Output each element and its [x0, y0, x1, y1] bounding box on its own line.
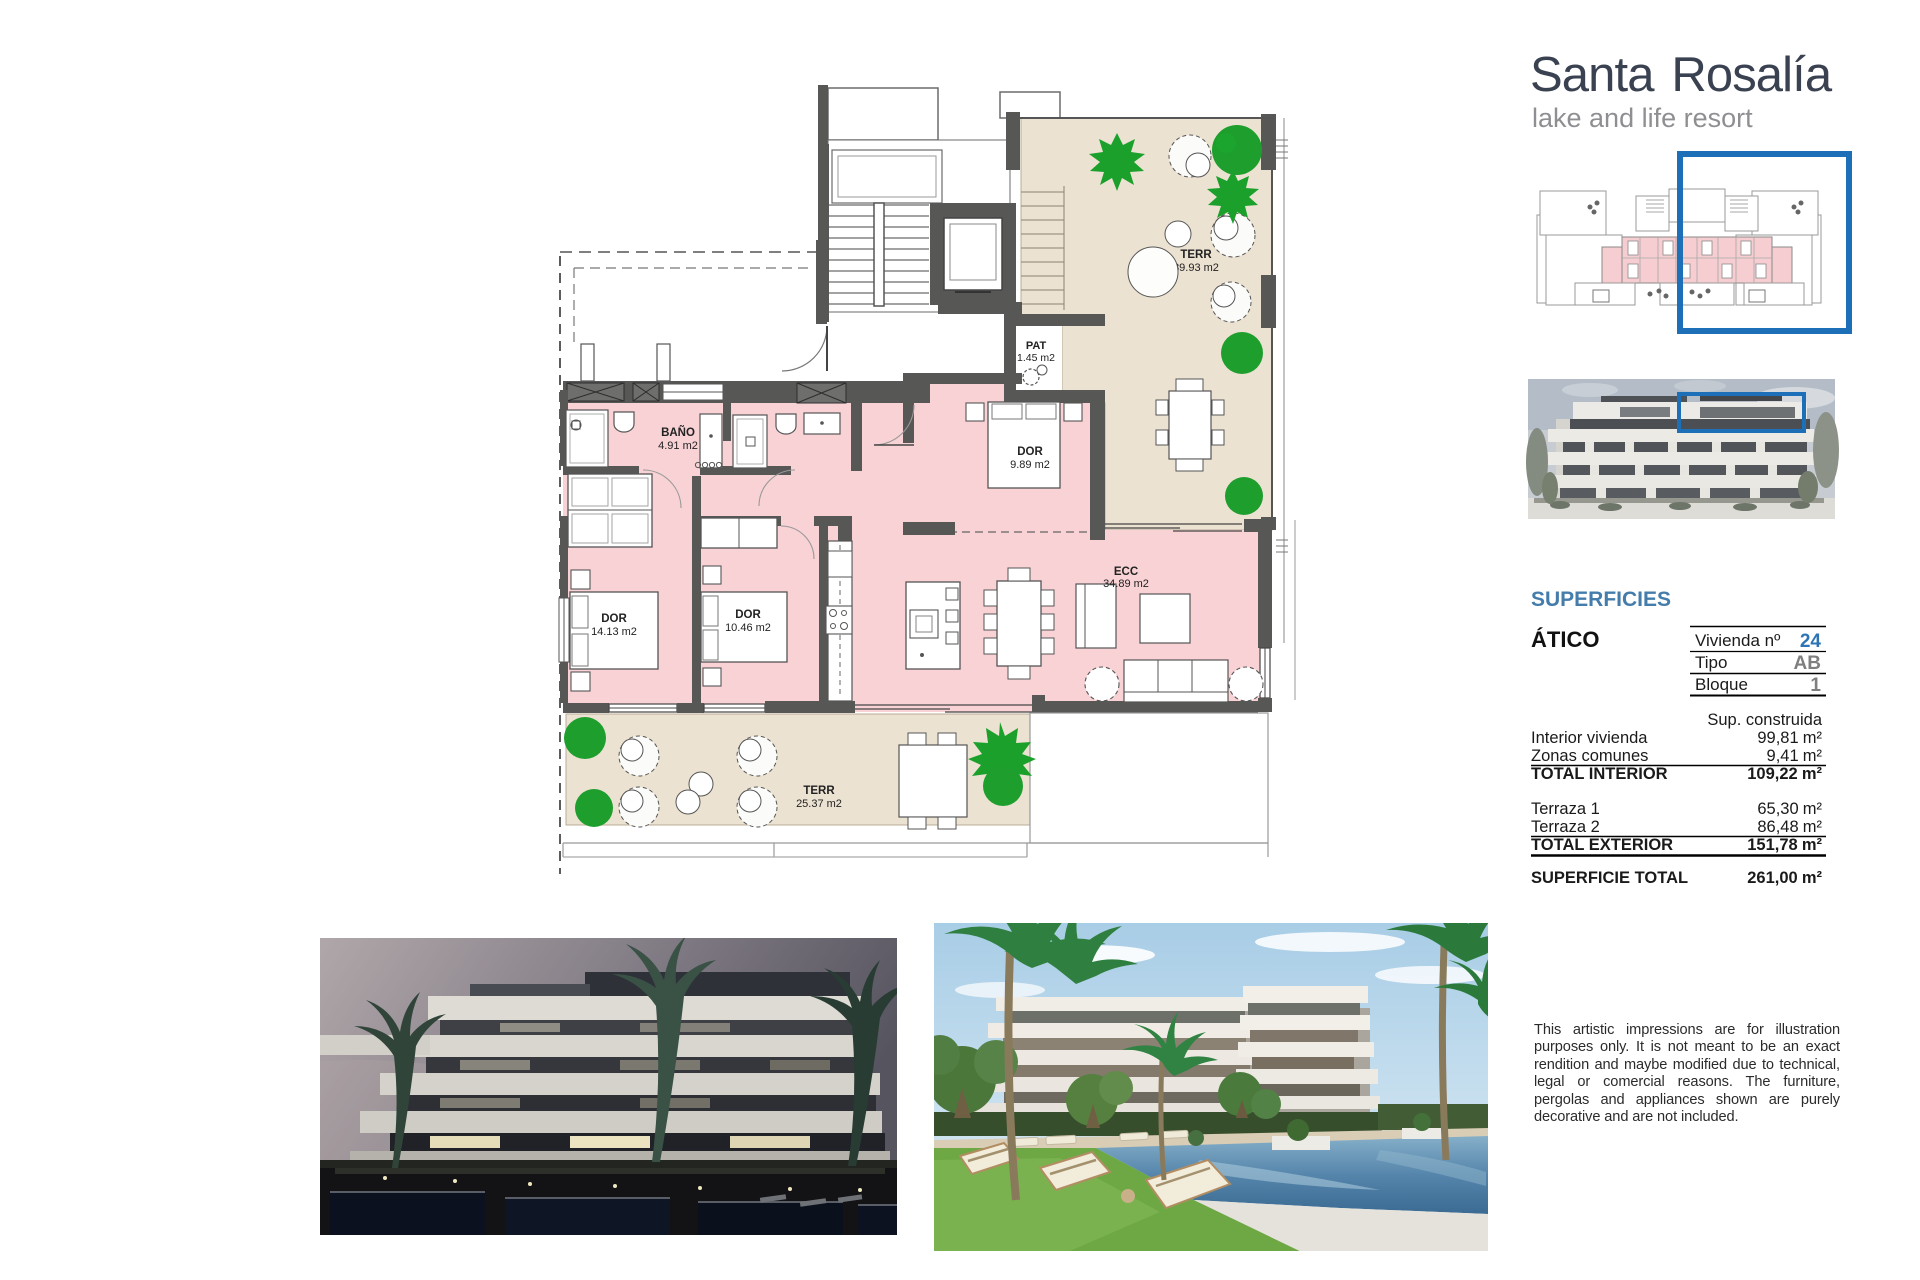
- svg-text:34.89 m2: 34.89 m2: [1103, 578, 1149, 590]
- svg-text:Tipo: Tipo: [1695, 653, 1727, 672]
- svg-text:4.91 m2: 4.91 m2: [658, 440, 698, 452]
- svg-text:9,41 m²: 9,41 m²: [1767, 747, 1823, 765]
- svg-text:261,00 m²: 261,00 m²: [1747, 869, 1822, 887]
- svg-text:86,48 m²: 86,48 m²: [1757, 818, 1822, 836]
- svg-text:DOR: DOR: [1017, 446, 1043, 458]
- svg-text:TOTAL INTERIOR: TOTAL INTERIOR: [1531, 765, 1668, 783]
- svg-text:Bloque: Bloque: [1695, 675, 1748, 694]
- svg-text:TERR: TERR: [1180, 249, 1212, 261]
- svg-text:AB: AB: [1794, 653, 1821, 674]
- svg-text:10.46 m2: 10.46 m2: [725, 622, 771, 634]
- svg-text:ÁTICO: ÁTICO: [1531, 627, 1599, 652]
- svg-text:DOR: DOR: [601, 613, 627, 625]
- svg-text:25.37 m2: 25.37 m2: [796, 798, 842, 810]
- svg-text:ECC: ECC: [1114, 566, 1138, 578]
- svg-text:109,22 m²: 109,22 m²: [1747, 765, 1822, 783]
- svg-text:Interior vivienda: Interior vivienda: [1531, 729, 1648, 747]
- svg-text:24: 24: [1800, 631, 1822, 652]
- svg-text:BAÑO: BAÑO: [661, 426, 695, 439]
- svg-text:TERR: TERR: [803, 785, 835, 797]
- svg-text:DOR: DOR: [735, 609, 761, 621]
- svg-text:9.89 m2: 9.89 m2: [1010, 459, 1050, 471]
- svg-text:39.93 m2: 39.93 m2: [1173, 262, 1219, 274]
- svg-text:151,78 m²: 151,78 m²: [1747, 836, 1822, 854]
- svg-text:99,81 m²: 99,81 m²: [1757, 729, 1822, 747]
- svg-text:Sup. construida: Sup. construida: [1707, 711, 1822, 729]
- svg-text:Vivienda nº: Vivienda nº: [1695, 631, 1780, 650]
- svg-text:PAT: PAT: [1026, 340, 1047, 352]
- svg-text:SUPERFICIE TOTAL: SUPERFICIE TOTAL: [1531, 869, 1688, 887]
- svg-text:Santa Rosalía: Santa Rosalía: [1530, 48, 1833, 102]
- svg-text:Terraza 1: Terraza 1: [1531, 800, 1600, 818]
- svg-text:SUPERFICIES: SUPERFICIES: [1531, 588, 1671, 611]
- svg-text:Terraza 2: Terraza 2: [1531, 818, 1600, 836]
- svg-text:1.45 m2: 1.45 m2: [1017, 352, 1055, 364]
- svg-text:lake and life resort: lake and life resort: [1532, 103, 1753, 133]
- svg-text:14.13 m2: 14.13 m2: [591, 626, 637, 638]
- svg-text:65,30 m²: 65,30 m²: [1757, 800, 1822, 818]
- svg-text:1: 1: [1810, 675, 1821, 696]
- svg-text:TOTAL EXTERIOR: TOTAL EXTERIOR: [1531, 836, 1673, 854]
- svg-text:Zonas comunes: Zonas comunes: [1531, 747, 1648, 765]
